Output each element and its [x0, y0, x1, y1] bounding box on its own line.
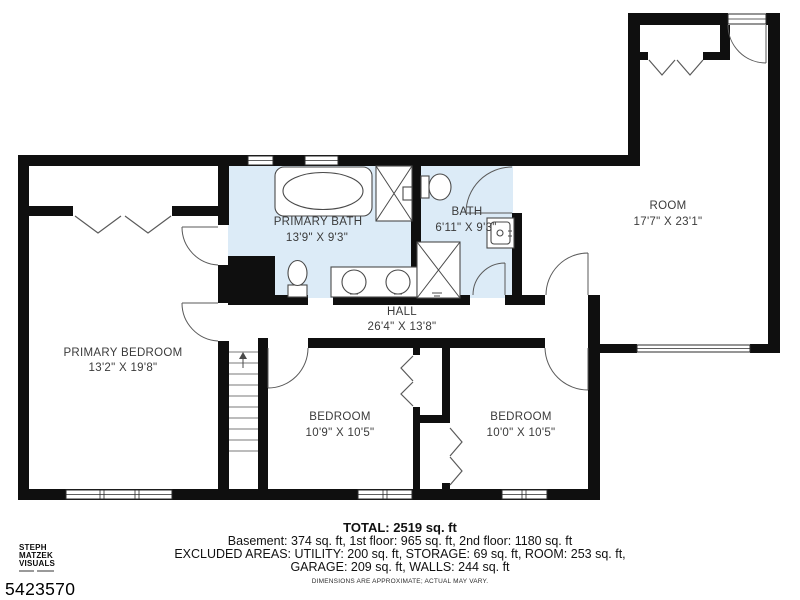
door-bedroom-right [545, 348, 588, 390]
label-bedroom-right: BEDROOM [490, 411, 552, 423]
total-area: TOTAL: 2519 sq. ft [0, 521, 800, 535]
double-vanity [331, 267, 417, 297]
label-primary-bath: PRIMARY BATH [274, 216, 363, 228]
closet-doors-room [649, 60, 703, 75]
room-entry-opening [728, 14, 766, 24]
listing-number: 5423570 [5, 579, 75, 600]
toilet-primary [288, 261, 307, 298]
label-hall: HALL [387, 306, 417, 318]
floor-plan-page: PRIMARY BEDROOM 13'2" X 19'8" PRIMARY BA… [0, 0, 800, 600]
dims-primary-bath: 13'9" X 9'3" [286, 232, 348, 244]
toilet-bath [421, 174, 451, 200]
dims-primary-bedroom: 13'2" X 19'8" [89, 362, 158, 374]
window-room-bottom [637, 345, 750, 352]
stair-arrow-head [239, 352, 247, 359]
window-primary-bedroom-triple [66, 490, 172, 499]
door-primary-bedroom-to-bath [182, 227, 218, 265]
dims-bedroom-right: 10'0" X 10'5" [487, 427, 556, 439]
window-bath-top-1 [248, 156, 273, 165]
shower-bath [417, 242, 460, 298]
window-bedroom-left [358, 490, 412, 499]
closet-doors-bedroom-left [401, 356, 413, 406]
dims-bedroom-left: 10'9" X 10'5" [306, 427, 375, 439]
closet-doors-bedroom-right [450, 428, 462, 485]
logo-tagline-marks [19, 570, 55, 572]
closet-doors-primary-bedroom [75, 216, 171, 233]
label-primary-bedroom: PRIMARY BEDROOM [63, 347, 182, 359]
staircase [229, 352, 258, 451]
door-primary-bedroom-to-hall [182, 303, 218, 341]
photographer-logo: STEPH MATZEK VISUALS [19, 544, 55, 572]
window-bath-top-2 [305, 156, 338, 165]
disclaimer: DIMENSIONS ARE APPROXIMATE; ACTUAL MAY V… [0, 578, 800, 586]
dims-bath: 6'11" X 9'3" [435, 222, 496, 234]
door-bedroom-left [268, 348, 308, 388]
excluded-areas-2: GARAGE: 209 sq. ft, WALLS: 244 sq. ft [0, 561, 800, 574]
floor-plan: PRIMARY BEDROOM 13'2" X 19'8" PRIMARY BA… [0, 0, 800, 600]
label-bath: BATH [451, 206, 482, 218]
excluded-areas-1: EXCLUDED AREAS: UTILITY: 200 sq. ft, STO… [0, 548, 800, 561]
label-room: ROOM [650, 200, 687, 212]
bathtub [275, 167, 372, 216]
door-hall-to-room [546, 253, 588, 295]
dims-hall: 26'4" X 13'8" [368, 321, 437, 333]
shower-primary [376, 166, 412, 221]
label-bedroom-left: BEDROOM [309, 411, 371, 423]
logo-line-3: VISUALS [19, 560, 55, 568]
area-summary: TOTAL: 2519 sq. ft Basement: 374 sq. ft,… [0, 521, 800, 586]
window-bedroom-right [502, 490, 547, 499]
floor-areas: Basement: 374 sq. ft, 1st floor: 965 sq.… [0, 535, 800, 548]
dims-room: 17'7" X 23'1" [634, 216, 703, 228]
chimney-block [228, 256, 275, 298]
door-room-entry [728, 25, 766, 63]
